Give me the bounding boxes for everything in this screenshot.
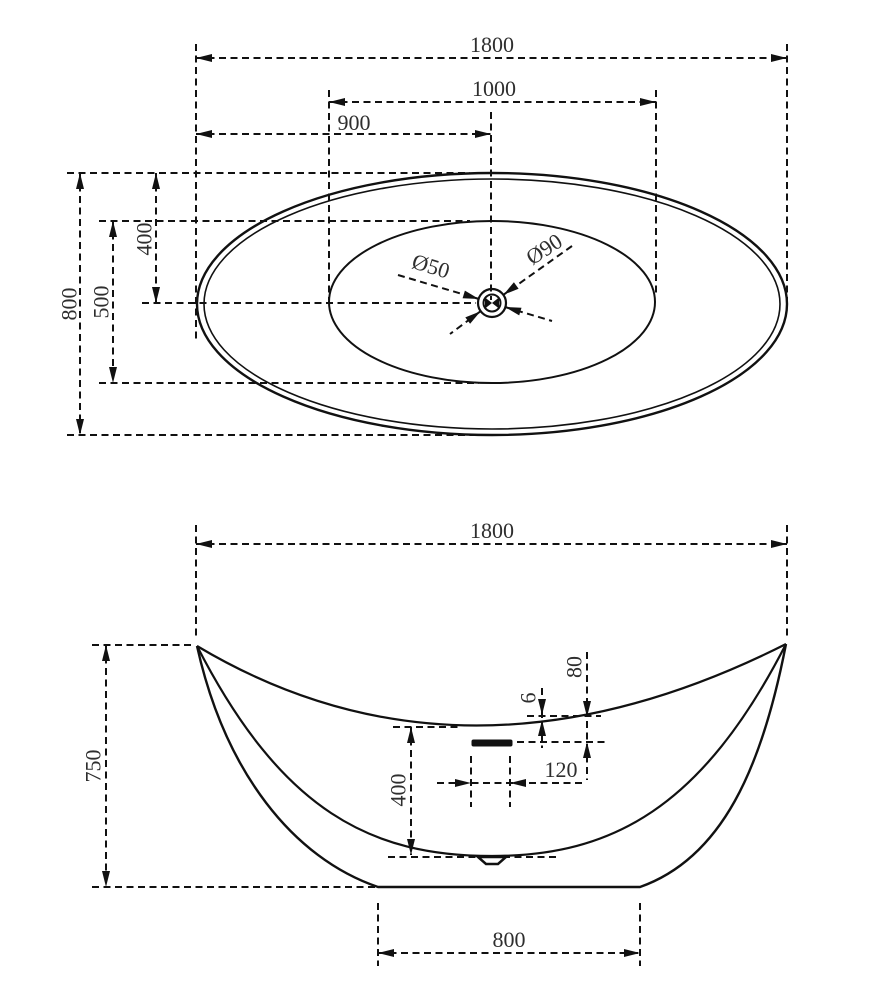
- overflow-slot: [472, 740, 513, 747]
- dim-label-drain-d90: Ø90: [521, 228, 566, 270]
- dim-top-drain-position: 900: [196, 110, 491, 138]
- tub-outer-profile: [197, 644, 786, 887]
- dim-top-basin-length: 1000: [329, 76, 656, 106]
- dim-label-front-1800: 1800: [470, 518, 514, 543]
- dim-top-overall-width: 800: [57, 173, 85, 435]
- dim-label-front-120: 120: [545, 757, 578, 782]
- dim-front-inner-depth: 400: [386, 727, 416, 855]
- drain-icon: [478, 289, 506, 317]
- dim-label-top-900: 900: [338, 110, 371, 135]
- bathtub-technical-drawing: 1800 1000 900 800 500: [0, 0, 893, 1000]
- dim-label-front-6: 6: [516, 693, 541, 704]
- dim-label-top-500: 500: [89, 286, 114, 319]
- dim-label-drain-d50: Ø50: [409, 249, 453, 284]
- dim-label-front-80: 80: [562, 656, 587, 678]
- dim-top-overall-length: 1800: [196, 32, 787, 62]
- dim-label-top-1000: 1000: [472, 76, 516, 101]
- dim-top-basin-width: 500: [89, 221, 118, 383]
- dim-front-base-length: 800: [378, 927, 640, 957]
- front-view: 1800 750 400 120 80: [81, 518, 788, 966]
- dim-front-overall-height: 750: [81, 645, 111, 887]
- dim-label-top-800: 800: [57, 288, 82, 321]
- tub-rim-curve: [197, 644, 786, 726]
- dim-label-front-800: 800: [493, 927, 526, 952]
- dim-top-center-offset: 400: [132, 173, 161, 303]
- dim-label-top-400: 400: [132, 223, 157, 256]
- dim-label-front-400: 400: [386, 774, 411, 807]
- dim-drain-trim-diameter: Ø90: [450, 228, 572, 334]
- top-view: 1800 1000 900 800 500: [57, 32, 788, 435]
- front-view-extension-lines: [92, 525, 787, 966]
- dim-front-overall-length: 1800: [196, 518, 787, 548]
- dim-label-front-750: 750: [81, 750, 106, 783]
- drawing-sheet: 1800 1000 900 800 500: [0, 0, 893, 1000]
- dim-label-top-1800: 1800: [470, 32, 514, 57]
- bottom-drain-notch: [478, 857, 506, 864]
